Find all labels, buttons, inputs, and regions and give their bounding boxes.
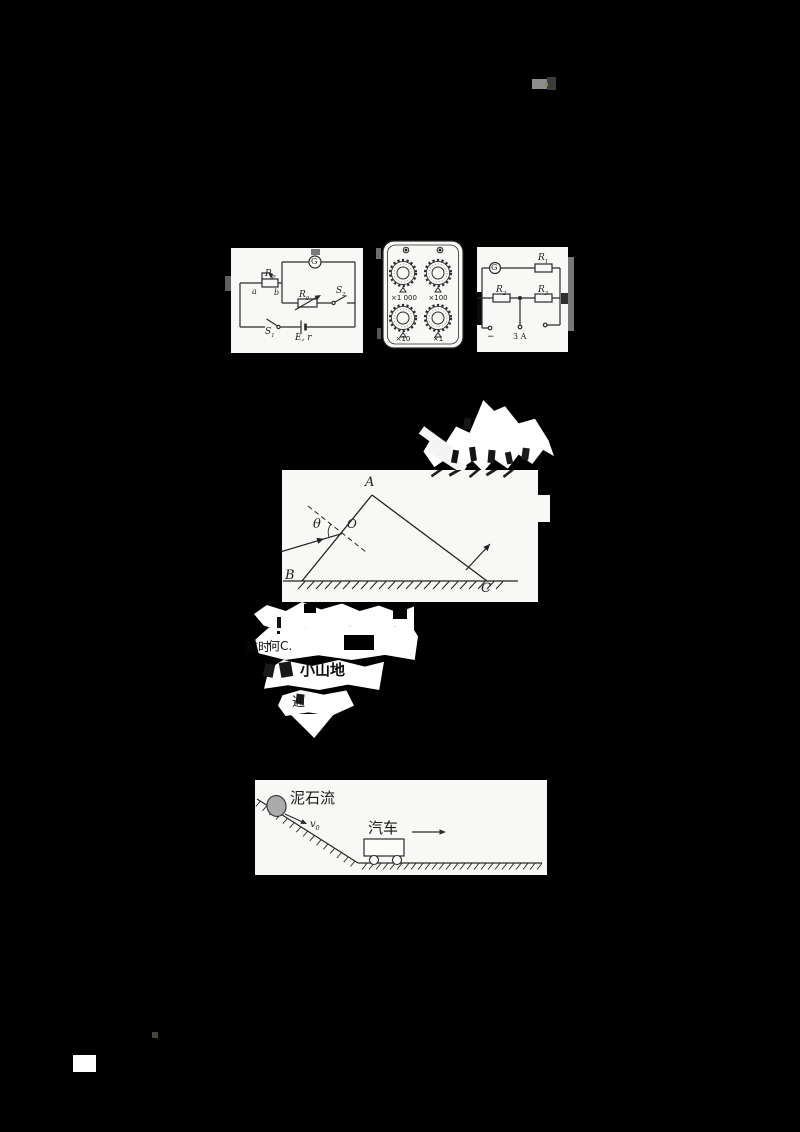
circuit2-neg-label: −: [487, 333, 495, 342]
circuit1-scan-cap: [311, 249, 320, 255]
scan-square-bottom-left-white: [73, 1055, 96, 1072]
v0-label: v0: [310, 820, 320, 832]
mountain-blob-glyph-mark1: [463, 418, 471, 430]
fragment-row2: 小山地: [300, 663, 345, 678]
circuit2-scan-square: [561, 293, 568, 304]
text-blob-exclamation-dot: [277, 631, 280, 634]
scan-artifact-mountain-blob: [418, 400, 554, 478]
prism-point-o-label: O: [347, 518, 357, 530]
prism-left-label: B: [285, 569, 295, 582]
text-blob-black-patch3: [304, 604, 316, 613]
circuit1-terminal-a-label: a: [252, 288, 257, 296]
fragment-row3: 通: [292, 696, 305, 709]
scanned-document-page: G RP a b R0 S2 S1 E, r: [0, 0, 800, 1132]
dial-label-x100: ×100: [424, 295, 452, 302]
mountain-blob-glyph-mark4: [487, 450, 495, 464]
circuit2-r2-label: R2: [496, 286, 506, 297]
circuit1-terminal-b-label: b: [274, 289, 279, 297]
scan-dot-bottom-left-gray: [152, 1032, 158, 1038]
resistance-box-figure: [368, 240, 478, 362]
circuit1-galvanometer-label: G: [311, 258, 317, 266]
prism-apex-label: A: [365, 476, 374, 489]
circuit1-s1-label: S1: [265, 328, 275, 339]
prism-panel-notch: [530, 495, 550, 522]
debris-flow-label: 泥石流: [290, 791, 335, 806]
circuit2-r3-label: R3: [538, 286, 548, 297]
circuit2-current-label: 3 A: [513, 333, 526, 341]
prism-theta-label: θ: [313, 518, 321, 531]
scan-smudge-top-right-dark: [547, 77, 556, 90]
dial-label-x1: ×1: [424, 336, 452, 343]
car-body: [364, 839, 404, 856]
fragment-row1b: 何C.: [268, 640, 292, 652]
text-blob-noise2: [279, 661, 293, 678]
circuit1-r0-label: R0: [299, 291, 309, 302]
text-blob-black-patch1: [393, 607, 407, 619]
circuit1-battery-label: E, r: [295, 334, 312, 343]
car-label: 汽车: [368, 821, 398, 836]
scan-dot-olive: [545, 83, 548, 86]
circuit1-s2-label: S2: [336, 287, 346, 298]
fragment-row1a: 前时: [246, 641, 270, 653]
junction-dot: [519, 297, 522, 300]
dial-label-x10: ×10: [389, 336, 417, 343]
box-scan-mark-left2: [377, 328, 381, 339]
box-scan-mark-left: [376, 248, 381, 259]
prism-figure: [280, 470, 550, 605]
circuit2-galvanometer-label: G: [491, 264, 497, 272]
prism-right-label: C: [481, 582, 491, 595]
car-wheel-left: [370, 856, 379, 865]
s2-contact: [332, 301, 335, 304]
text-blob-tail: [290, 714, 334, 738]
circuit2-scan-bar: [477, 292, 482, 325]
circuit1-rp-label: RP: [265, 270, 276, 281]
text-blob-black-patch2: [344, 635, 374, 650]
car-wheel-right: [393, 856, 402, 865]
scan-strip-right-of-circuit: [568, 257, 574, 331]
prism-panel: [282, 470, 538, 602]
text-blob-white4: [278, 690, 354, 716]
circuit2-r1-label: R1: [538, 254, 548, 265]
text-blob-exclamation-bar: [277, 617, 281, 628]
dial-label-x1000: ×1 000: [388, 295, 420, 302]
